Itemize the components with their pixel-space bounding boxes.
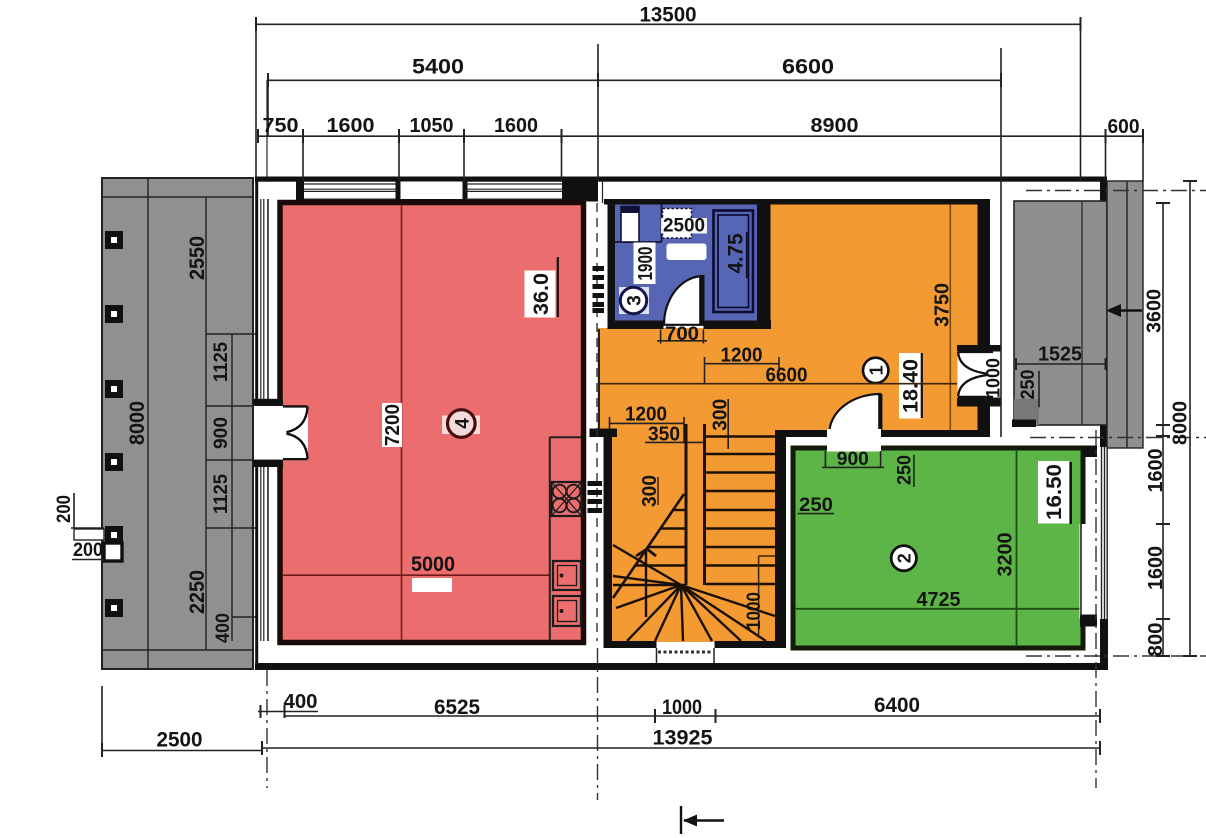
- svg-text:250: 250: [894, 455, 915, 485]
- svg-text:6400: 6400: [874, 694, 920, 717]
- svg-text:1600: 1600: [494, 115, 538, 137]
- svg-text:6600: 6600: [766, 365, 808, 387]
- svg-text:1600: 1600: [327, 115, 375, 137]
- svg-text:6600: 6600: [782, 56, 834, 79]
- svg-text:2550: 2550: [186, 236, 209, 280]
- svg-text:5400: 5400: [412, 56, 464, 79]
- svg-text:3750: 3750: [932, 283, 954, 327]
- svg-text:700: 700: [665, 324, 699, 345]
- svg-text:900: 900: [211, 417, 232, 449]
- svg-text:7200: 7200: [382, 404, 404, 446]
- svg-text:6525: 6525: [434, 696, 480, 719]
- svg-text:4725: 4725: [917, 589, 961, 611]
- svg-text:1200: 1200: [721, 345, 763, 367]
- svg-text:1600: 1600: [1145, 546, 1167, 590]
- svg-text:3: 3: [625, 295, 646, 306]
- svg-text:800: 800: [1145, 623, 1167, 657]
- svg-text:5000: 5000: [411, 553, 455, 576]
- svg-text:1200: 1200: [625, 404, 667, 426]
- svg-text:8000: 8000: [1170, 401, 1192, 445]
- svg-text:1000: 1000: [744, 592, 765, 630]
- svg-text:2250: 2250: [186, 570, 209, 614]
- svg-text:1600: 1600: [1145, 449, 1167, 493]
- svg-text:3200: 3200: [995, 533, 1017, 577]
- svg-text:8000: 8000: [126, 401, 149, 445]
- svg-text:250: 250: [1018, 370, 1039, 400]
- svg-text:2: 2: [894, 553, 914, 563]
- svg-text:1900: 1900: [635, 247, 657, 281]
- svg-text:36.0: 36.0: [530, 273, 553, 315]
- svg-text:400: 400: [284, 691, 318, 713]
- svg-text:1: 1: [866, 365, 886, 375]
- svg-text:13925: 13925: [653, 727, 713, 750]
- svg-text:2500: 2500: [157, 729, 203, 752]
- svg-text:300: 300: [639, 475, 661, 507]
- svg-text:1050: 1050: [410, 115, 454, 137]
- svg-text:1125: 1125: [211, 342, 232, 382]
- svg-text:13500: 13500: [640, 4, 697, 27]
- svg-text:1525: 1525: [1038, 344, 1082, 366]
- svg-text:400: 400: [213, 613, 234, 643]
- svg-text:1000: 1000: [662, 696, 702, 719]
- svg-text:600: 600: [1108, 116, 1140, 138]
- svg-text:3600: 3600: [1144, 289, 1166, 333]
- svg-text:8900: 8900: [811, 115, 859, 137]
- svg-text:1125: 1125: [211, 474, 232, 514]
- svg-text:4: 4: [452, 418, 473, 429]
- svg-text:300: 300: [709, 399, 731, 431]
- svg-text:2500: 2500: [663, 216, 705, 237]
- svg-text:200: 200: [54, 495, 75, 523]
- svg-text:200: 200: [73, 540, 103, 561]
- svg-text:350: 350: [648, 424, 680, 446]
- svg-text:16.50: 16.50: [1043, 464, 1066, 520]
- svg-text:18.40: 18.40: [900, 359, 923, 413]
- svg-text:4.75: 4.75: [725, 233, 748, 273]
- svg-text:900: 900: [837, 449, 869, 470]
- svg-text:750: 750: [263, 115, 299, 137]
